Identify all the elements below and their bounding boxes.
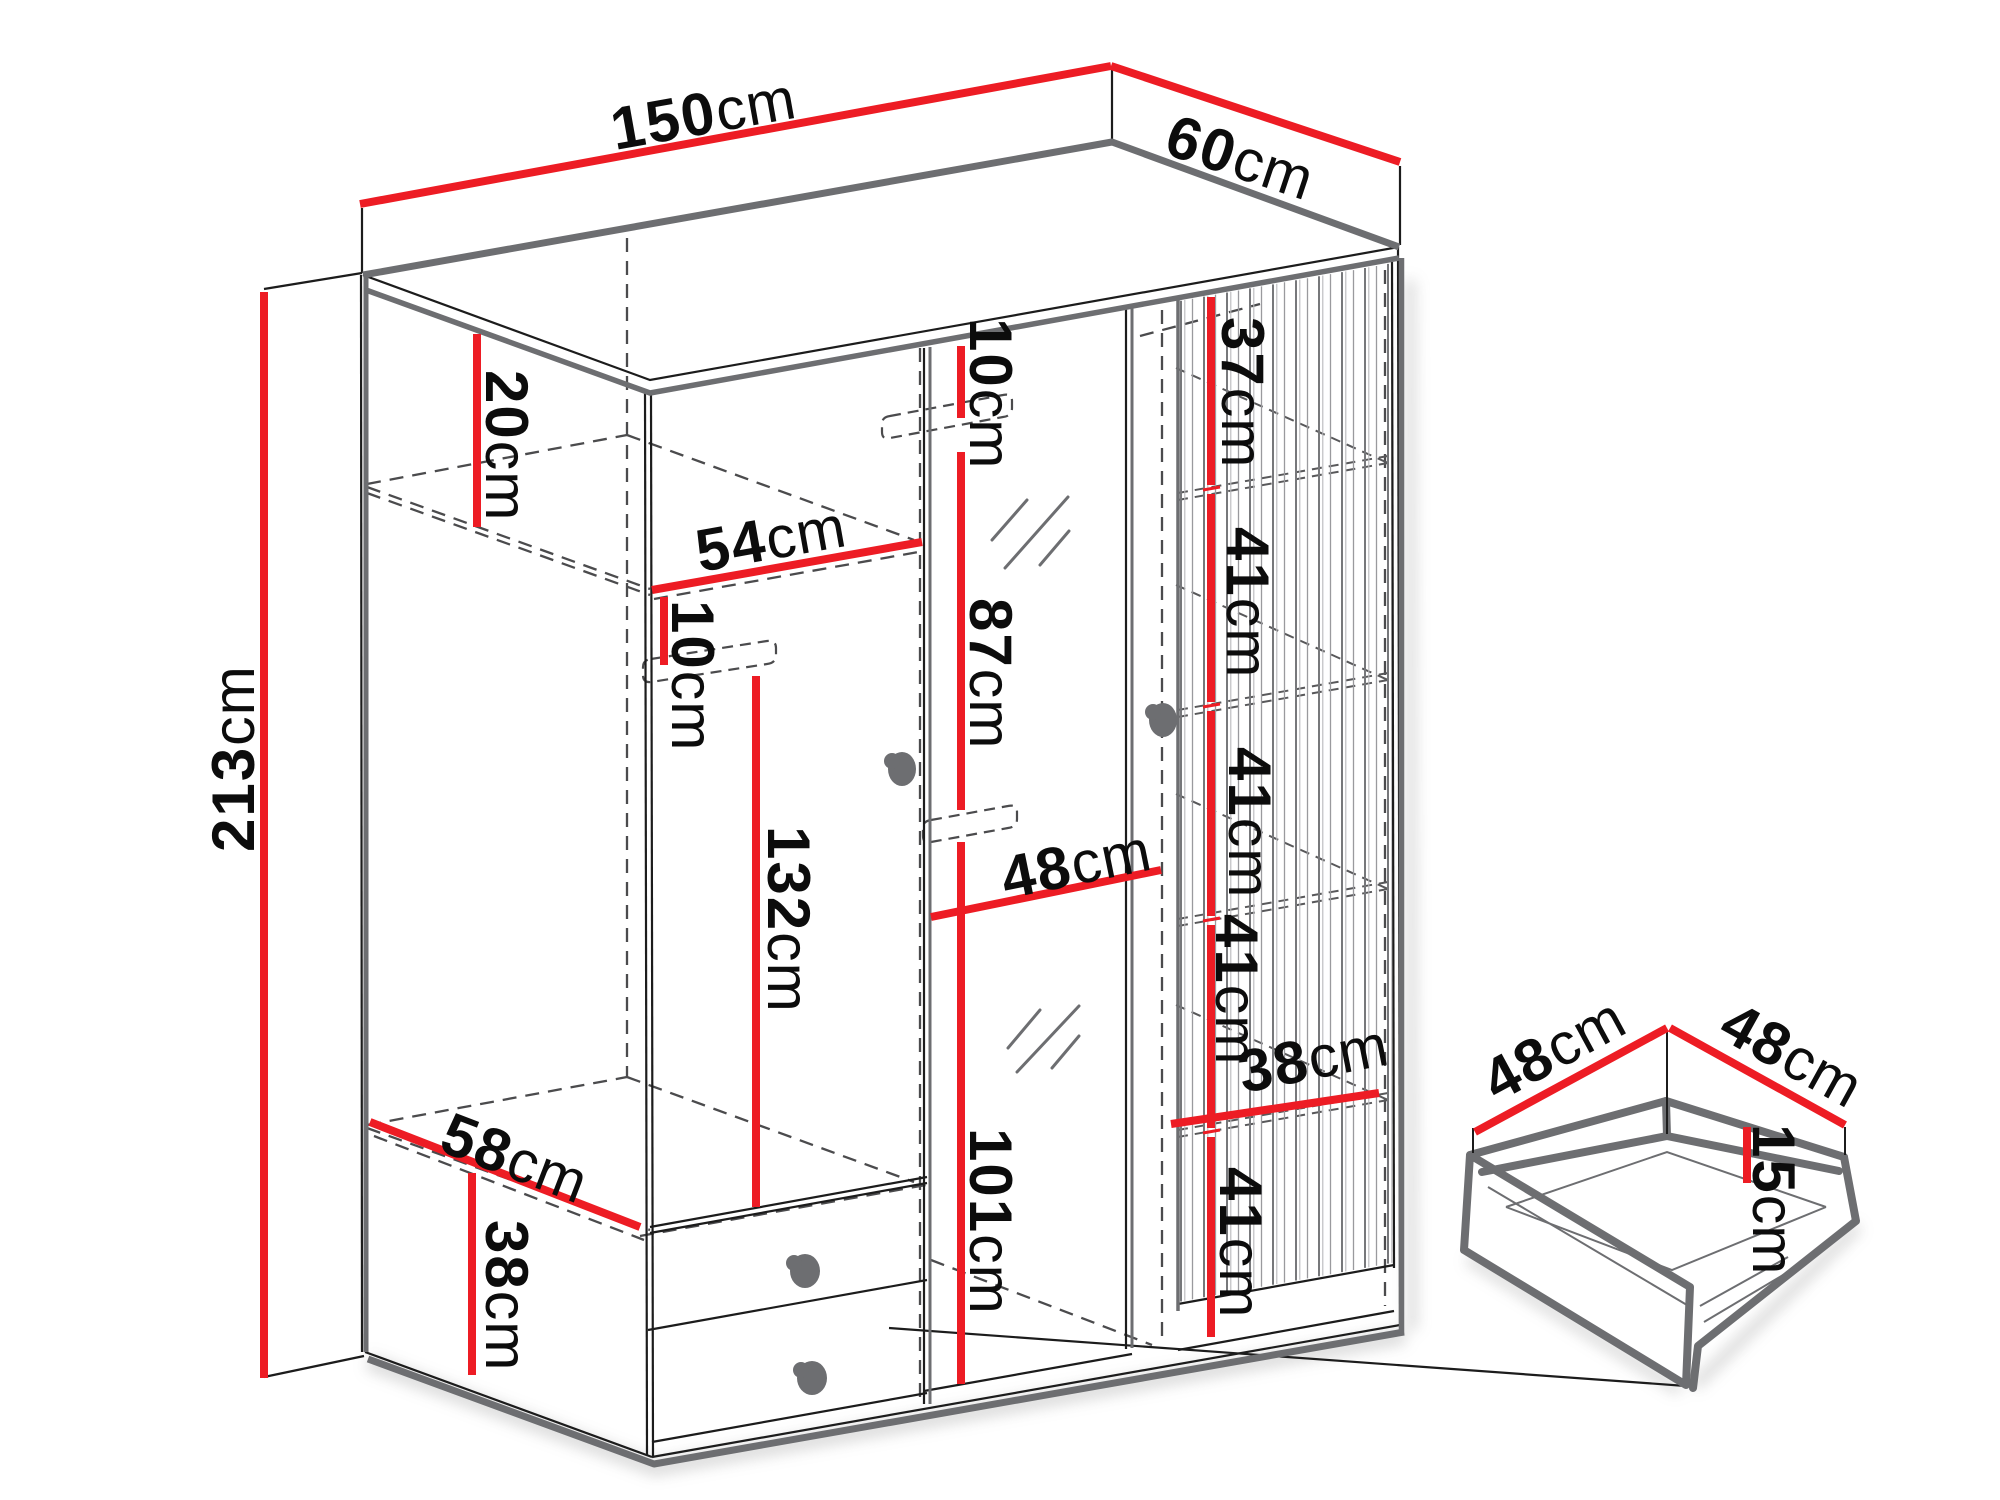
svg-text:10cm: 10cm <box>957 318 1024 469</box>
svg-text:15cm: 15cm <box>1740 1124 1807 1275</box>
svg-text:132cm: 132cm <box>755 826 822 1013</box>
svg-text:101cm: 101cm <box>957 1128 1024 1315</box>
svg-text:41cm: 41cm <box>1216 747 1283 898</box>
svg-text:37cm: 37cm <box>1209 317 1276 468</box>
svg-text:10cm: 10cm <box>659 600 726 751</box>
svg-text:87cm: 87cm <box>957 598 1024 749</box>
svg-text:41cm: 41cm <box>1214 527 1281 678</box>
svg-text:41cm: 41cm <box>1207 1167 1274 1318</box>
svg-text:213cm: 213cm <box>200 665 267 852</box>
svg-text:38cm: 38cm <box>473 1220 540 1371</box>
svg-text:20cm: 20cm <box>473 370 540 521</box>
